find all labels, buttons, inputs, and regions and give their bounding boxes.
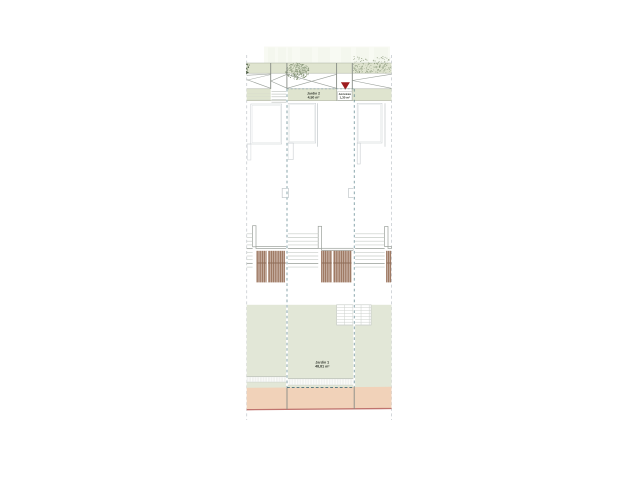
svg-text:1,30 m²: 1,30 m² [340,96,350,100]
svg-text:4,50 m²: 4,50 m² [308,95,321,99]
svg-text:48,81 m²: 48,81 m² [315,365,330,369]
